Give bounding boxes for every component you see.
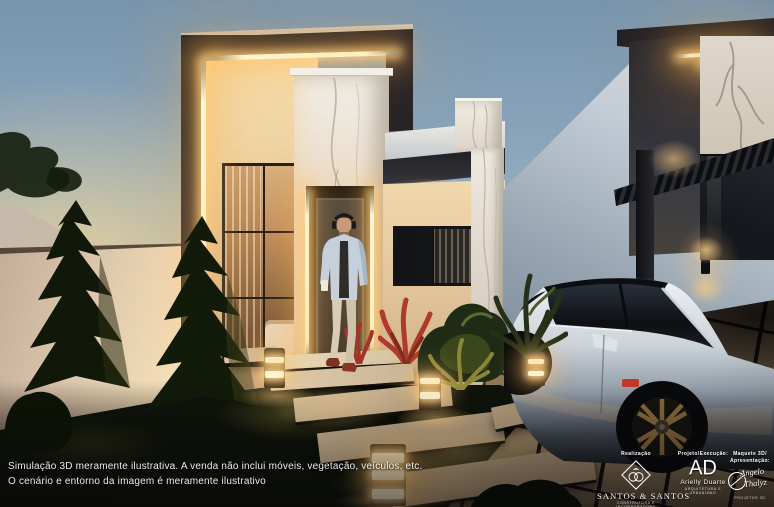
projeto-tagline: ARQUITETURA E URBANISMO <box>676 487 730 495</box>
bollard-light-3 <box>527 352 545 386</box>
rendering-canvas: Simulação 3D meramente ilustrativa. A ve… <box>0 0 774 507</box>
realizacao-company: SANTOS & SANTOS <box>597 491 675 501</box>
bollard-light-2 <box>419 370 441 410</box>
credit-projeto: Projeto/Execução: AD Arielly Duarte ARQU… <box>676 451 730 495</box>
ad-monogram: AD <box>676 457 730 480</box>
marble-tower-cap <box>290 68 393 76</box>
credit-maquete: Maquete 3D/ Apresentação: Angelo Thalyz … <box>726 451 774 500</box>
conifer-tree-2 <box>138 216 268 448</box>
signature-name-bottom: Thalyz <box>744 478 767 488</box>
foreground-dark-foliage <box>470 460 582 507</box>
door-led-strip-left <box>305 189 309 367</box>
phone-in-hand <box>321 280 328 291</box>
disclaimer-text: Simulação 3D meramente ilustrativa. A ve… <box>8 460 478 489</box>
disclaimer-line-2: O cenário e entorno da imagem é merament… <box>8 475 478 490</box>
tall-plant-by-neighbor <box>488 254 568 358</box>
marble-branch-veins <box>700 36 774 154</box>
realizacao-tagline: CONSTRUTORA E INCORPORADORA <box>597 501 675 507</box>
bollard-light-1 <box>264 348 285 388</box>
signature-name-top: Angelo <box>740 467 765 477</box>
realizacao-label: Realização <box>597 451 675 458</box>
window-mullion <box>432 229 434 283</box>
maquete-label-1: Maquete 3D/ <box>726 451 774 458</box>
credit-realizacao: Realização SANTOS & SANTOS CONSTRUTORA E… <box>597 451 675 507</box>
window-curtain <box>433 229 474 283</box>
maquete-label-2: Apresentação: <box>726 458 774 465</box>
santos-diamond-logo-icon <box>620 459 652 491</box>
maquete-tagline: PROJETOS 3D <box>726 496 774 500</box>
bedroom-window <box>393 226 477 286</box>
car-red-marker <box>622 379 639 387</box>
neighbor-marble-wall <box>700 36 774 154</box>
marble-chimney-block <box>455 98 502 154</box>
disclaimer-line-1: Simulação 3D meramente ilustrativa. A ve… <box>8 460 478 475</box>
walking-man <box>318 212 370 372</box>
shrub-left-corner <box>0 356 78 452</box>
